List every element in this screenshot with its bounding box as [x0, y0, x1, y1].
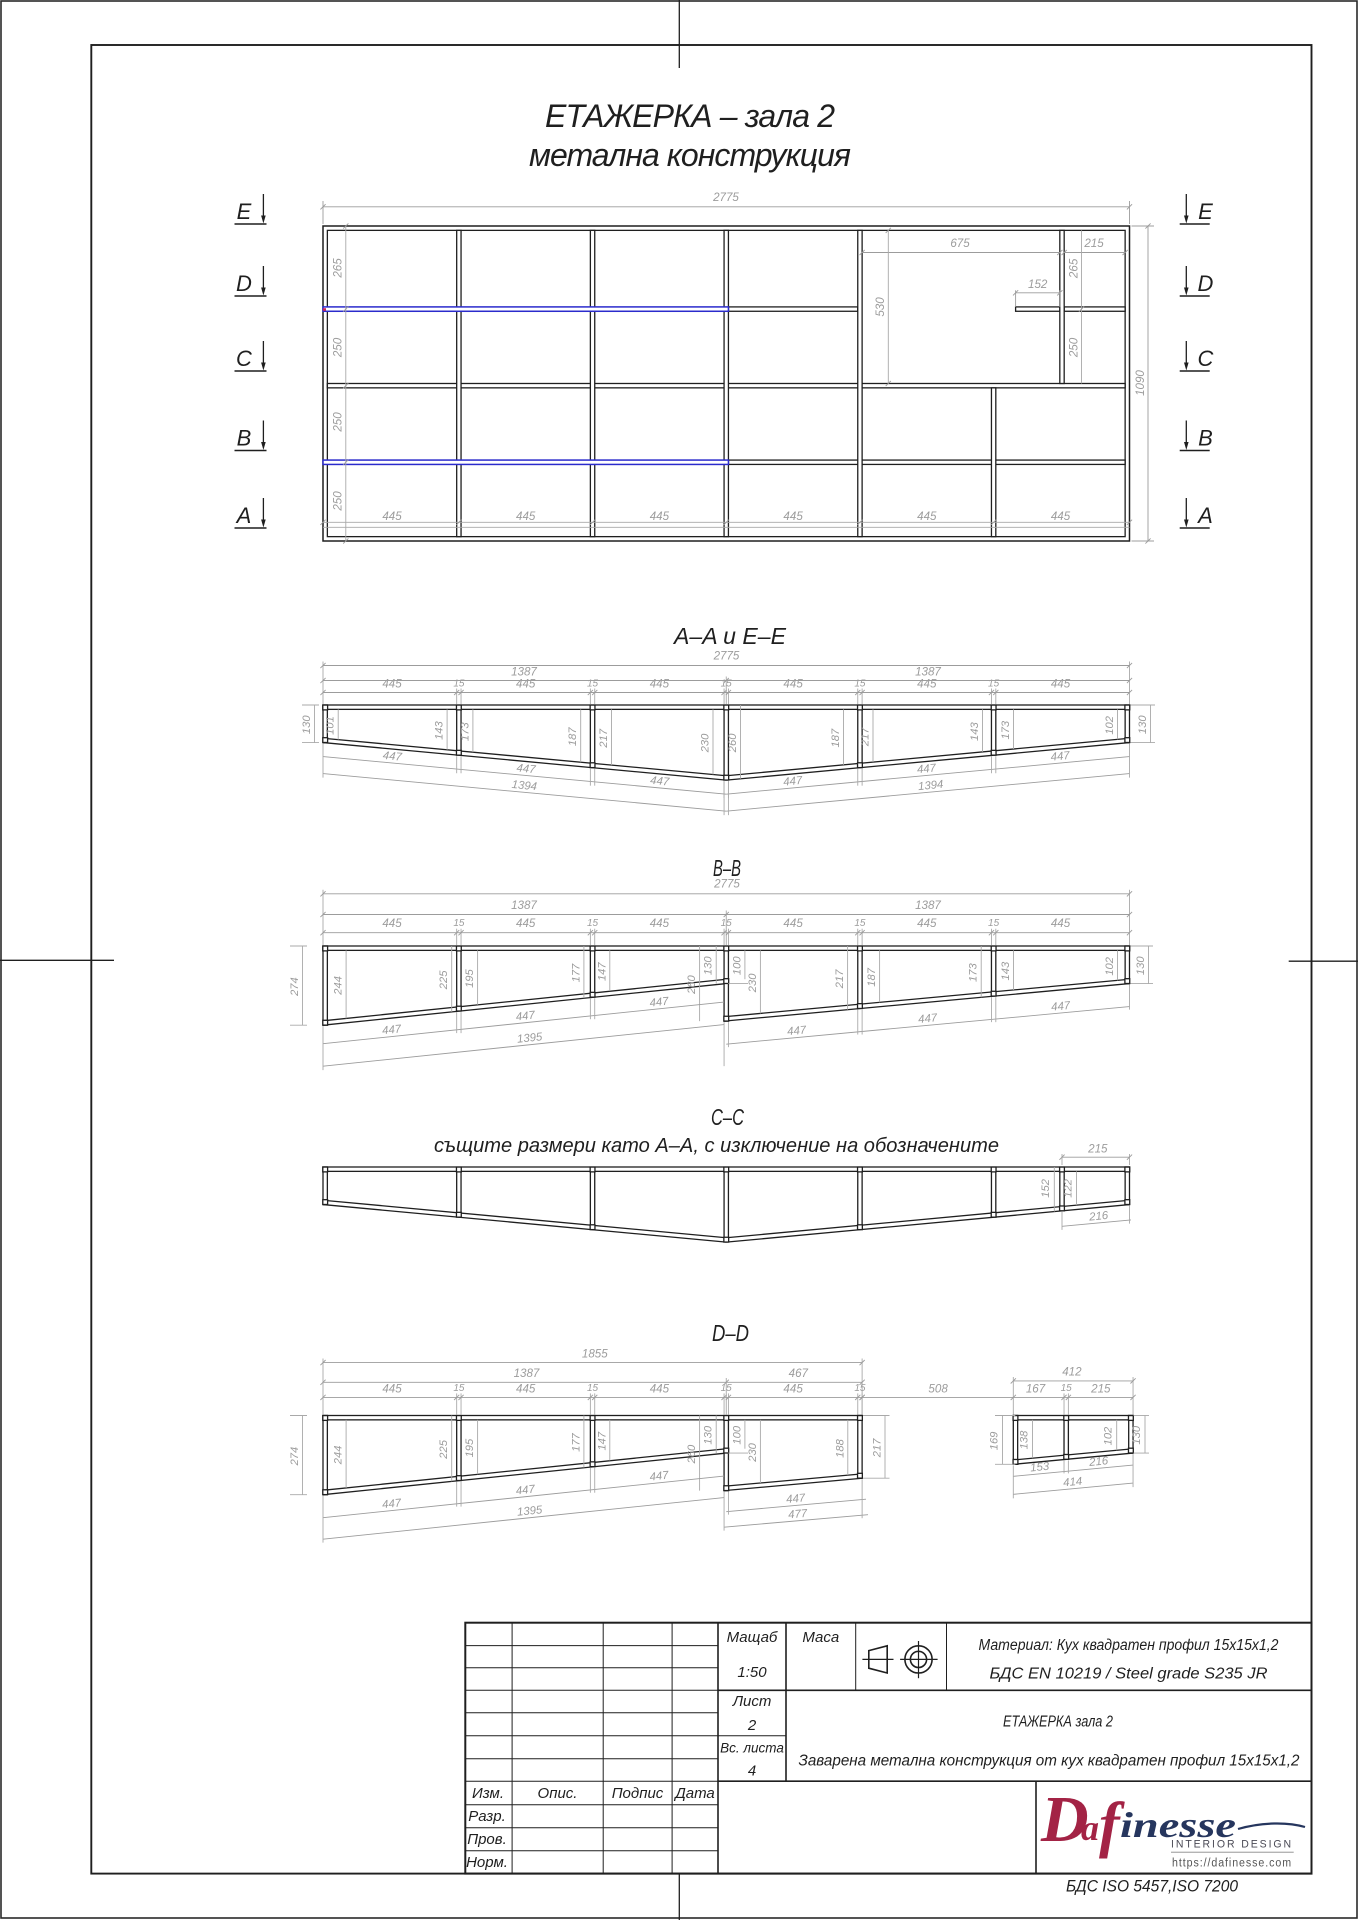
svg-text:445: 445	[783, 1383, 803, 1396]
svg-text:167: 167	[1026, 1383, 1046, 1396]
svg-text:B: B	[1198, 426, 1213, 451]
svg-text:445: 445	[1051, 678, 1071, 691]
svg-text:15: 15	[453, 918, 465, 929]
svg-text:Норм.: Норм.	[466, 1854, 508, 1871]
svg-text:15: 15	[587, 918, 599, 929]
svg-text:102: 102	[1103, 1426, 1115, 1445]
svg-text:Вс. листа: Вс. листа	[720, 1741, 784, 1756]
svg-text:260: 260	[727, 733, 739, 753]
svg-text:Маса: Маса	[802, 1629, 839, 1646]
svg-text:A: A	[1196, 503, 1213, 528]
svg-text:445: 445	[783, 678, 803, 691]
svg-text:1387: 1387	[511, 899, 537, 912]
svg-text:15: 15	[721, 918, 733, 929]
svg-text:216: 216	[1088, 1210, 1110, 1224]
svg-text:153: 153	[1030, 1461, 1051, 1475]
svg-text:1394: 1394	[918, 779, 944, 793]
svg-text:173: 173	[968, 963, 980, 982]
svg-text:INTERIOR DESIGN: INTERIOR DESIGN	[1171, 1839, 1293, 1851]
svg-text:БДС EN 10219 / Steel grade S: БДС EN 10219 / Steel grade S235 JR	[990, 1666, 1268, 1683]
svg-text:169: 169	[988, 1432, 1000, 1451]
svg-text:215: 215	[1090, 1383, 1111, 1396]
svg-text:E: E	[237, 199, 252, 224]
svg-text:445: 445	[382, 678, 402, 691]
svg-text:130: 130	[703, 1425, 715, 1444]
svg-text:15: 15	[988, 918, 1000, 929]
svg-text:225: 225	[438, 970, 450, 990]
svg-text:447: 447	[515, 1483, 536, 1497]
svg-text:Заварена метална конструкция о: Заварена метална конструкция от кух квад…	[799, 1753, 1300, 1770]
svg-text:447: 447	[515, 1009, 536, 1023]
svg-text:244: 244	[333, 1446, 345, 1466]
svg-text:467: 467	[789, 1367, 809, 1380]
svg-text:15: 15	[854, 918, 866, 929]
svg-text:15: 15	[453, 1383, 465, 1394]
svg-text:2: 2	[747, 1717, 757, 1734]
svg-text:15: 15	[854, 678, 866, 689]
svg-text:15: 15	[587, 1383, 599, 1394]
svg-text:265: 265	[1068, 258, 1081, 279]
svg-text:15: 15	[721, 678, 733, 689]
svg-text:2775: 2775	[713, 878, 740, 891]
svg-text:445: 445	[650, 1383, 670, 1396]
svg-text:230: 230	[747, 973, 759, 993]
svg-text:173: 173	[459, 722, 471, 741]
svg-text:152: 152	[1040, 1178, 1052, 1197]
svg-text:https://dafinesse.com: https://dafinesse.com	[1172, 1858, 1292, 1870]
svg-text:4: 4	[748, 1763, 756, 1780]
svg-text:508: 508	[928, 1383, 948, 1396]
svg-text:Изм.: Изм.	[472, 1785, 504, 1802]
svg-text:445: 445	[516, 1383, 536, 1396]
svg-text:447: 447	[783, 775, 804, 789]
svg-text:15: 15	[988, 678, 1000, 689]
svg-text:147: 147	[596, 962, 608, 981]
svg-text:130: 130	[301, 715, 313, 734]
svg-text:414: 414	[1063, 1476, 1083, 1490]
svg-text:C–C: C–C	[711, 1104, 744, 1130]
svg-text:445: 445	[650, 678, 670, 691]
svg-text:D–D: D–D	[712, 1320, 749, 1346]
svg-text:260: 260	[686, 974, 698, 994]
svg-text:477: 477	[788, 1508, 809, 1522]
svg-text:2775: 2775	[712, 191, 739, 204]
svg-text:225: 225	[438, 1439, 450, 1459]
svg-text:447: 447	[918, 1012, 939, 1026]
svg-text:ЕТАЖЕРКА зала 2: ЕТАЖЕРКА зала 2	[1003, 1714, 1113, 1731]
svg-text:130: 130	[1131, 1425, 1143, 1444]
svg-text:130: 130	[1135, 956, 1147, 975]
svg-text:Лист: Лист	[732, 1693, 772, 1710]
svg-text:100: 100	[731, 1425, 743, 1444]
svg-text:445: 445	[1051, 917, 1071, 930]
svg-text:1090: 1090	[1134, 370, 1147, 396]
svg-text:250: 250	[332, 491, 345, 512]
svg-text:217: 217	[598, 728, 610, 748]
svg-text:250: 250	[332, 412, 345, 433]
svg-text:217: 217	[872, 1438, 884, 1458]
svg-text:15: 15	[1061, 1383, 1073, 1394]
svg-text:Разр.: Разр.	[468, 1808, 506, 1825]
svg-text:447: 447	[516, 762, 537, 776]
svg-text:B: B	[237, 426, 252, 451]
svg-text:Пров.: Пров.	[467, 1831, 507, 1848]
svg-text:445: 445	[650, 917, 670, 930]
svg-text:412: 412	[1062, 1366, 1082, 1379]
svg-text:Подпис: Подпис	[612, 1785, 664, 1802]
svg-text:445: 445	[650, 510, 670, 523]
svg-text:274: 274	[289, 977, 301, 997]
svg-text:143: 143	[1000, 961, 1012, 980]
svg-text:195: 195	[464, 1438, 476, 1457]
svg-text:100: 100	[731, 956, 743, 975]
svg-text:260: 260	[686, 1444, 698, 1464]
svg-text:187: 187	[866, 967, 878, 986]
svg-text:15: 15	[453, 678, 465, 689]
svg-text:ЕТАЖЕРКА – зала 2: ЕТАЖЕРКА – зала 2	[545, 98, 835, 134]
svg-text:675: 675	[950, 237, 970, 250]
svg-text:445: 445	[382, 917, 402, 930]
svg-text:A–A и E–E: A–A и E–E	[672, 623, 787, 649]
svg-text:177: 177	[570, 1432, 582, 1451]
svg-text:15: 15	[721, 1383, 733, 1394]
svg-text:445: 445	[516, 510, 536, 523]
svg-text:143: 143	[969, 722, 981, 741]
svg-text:217: 217	[859, 727, 871, 747]
svg-text:447: 447	[786, 1492, 807, 1506]
svg-text:274: 274	[289, 1447, 301, 1467]
svg-text:445: 445	[382, 1383, 402, 1396]
svg-text:188: 188	[834, 1438, 846, 1457]
svg-text:147: 147	[596, 1431, 608, 1450]
svg-text:445: 445	[917, 917, 937, 930]
svg-text:445: 445	[783, 917, 803, 930]
svg-text:15: 15	[854, 1383, 866, 1394]
svg-text:447: 447	[649, 996, 670, 1010]
svg-text:същите размери като А–А, с из: същите размери като А–А, с изключение на…	[434, 1135, 999, 1157]
svg-text:250: 250	[1068, 337, 1081, 358]
svg-text:250: 250	[332, 337, 345, 358]
svg-text:447: 447	[916, 762, 937, 776]
svg-text:Дата: Дата	[673, 1785, 715, 1802]
svg-text:187: 187	[830, 728, 842, 747]
svg-text:230: 230	[700, 733, 712, 753]
svg-text:метална конструкция: метална конструкция	[529, 137, 851, 173]
svg-text:177: 177	[570, 963, 582, 982]
svg-text:445: 445	[1051, 510, 1071, 523]
svg-text:445: 445	[783, 510, 803, 523]
svg-text:1:50: 1:50	[737, 1664, 767, 1681]
svg-text:152: 152	[1028, 278, 1048, 291]
svg-text:C: C	[236, 346, 252, 371]
svg-text:C: C	[1198, 346, 1214, 371]
svg-text:D: D	[236, 271, 252, 296]
svg-text:445: 445	[382, 510, 402, 523]
svg-text:447: 447	[382, 1497, 403, 1511]
svg-text:244: 244	[333, 976, 345, 996]
svg-text:447: 447	[649, 1470, 670, 1484]
svg-text:102: 102	[1104, 956, 1116, 975]
svg-text:1855: 1855	[582, 1347, 608, 1360]
svg-text:447: 447	[1051, 1000, 1072, 1014]
svg-text:E: E	[1198, 199, 1213, 224]
svg-text:265: 265	[332, 258, 345, 279]
svg-text:15: 15	[587, 678, 599, 689]
svg-text:138: 138	[1018, 1430, 1030, 1449]
svg-text:445: 445	[516, 678, 536, 691]
svg-text:445: 445	[516, 917, 536, 930]
svg-text:Мащаб: Мащаб	[727, 1629, 778, 1646]
svg-text:A: A	[235, 503, 252, 528]
svg-text:447: 447	[382, 1023, 403, 1037]
svg-text:216: 216	[1088, 1455, 1110, 1469]
svg-text:215: 215	[1087, 1143, 1108, 1156]
svg-text:БДС ISO 5457,ISO 7200: БДС ISO 5457,ISO 7200	[1066, 1877, 1238, 1896]
svg-text:445: 445	[917, 510, 937, 523]
svg-text:173: 173	[1000, 720, 1012, 739]
svg-text:445: 445	[917, 678, 937, 691]
svg-text:1387: 1387	[915, 899, 941, 912]
svg-text:130: 130	[703, 956, 715, 975]
svg-text:1387: 1387	[514, 1367, 540, 1380]
svg-text:447: 447	[650, 775, 671, 789]
svg-text:447: 447	[787, 1024, 808, 1038]
svg-text:1394: 1394	[511, 779, 537, 793]
svg-text:122: 122	[1063, 1178, 1075, 1197]
svg-text:143: 143	[434, 720, 446, 739]
svg-text:187: 187	[567, 727, 579, 746]
svg-text:Опис.: Опис.	[538, 1785, 578, 1802]
svg-text:447: 447	[1050, 750, 1071, 764]
svg-text:130: 130	[1137, 715, 1149, 734]
svg-text:447: 447	[382, 750, 403, 764]
svg-text:D: D	[1198, 271, 1214, 296]
svg-text:215: 215	[1083, 237, 1104, 250]
svg-text:101: 101	[325, 716, 337, 735]
svg-text:Материал: Кух квадратен профи: Материал: Кух квадратен профил 15х15х1,2	[979, 1637, 1279, 1654]
svg-text:195: 195	[464, 968, 476, 987]
svg-text:217: 217	[834, 969, 846, 989]
svg-text:a: a	[1081, 1808, 1099, 1848]
svg-text:2775: 2775	[713, 650, 740, 663]
svg-text:102: 102	[1104, 715, 1116, 734]
svg-text:230: 230	[747, 1442, 759, 1462]
svg-text:530: 530	[874, 297, 887, 317]
